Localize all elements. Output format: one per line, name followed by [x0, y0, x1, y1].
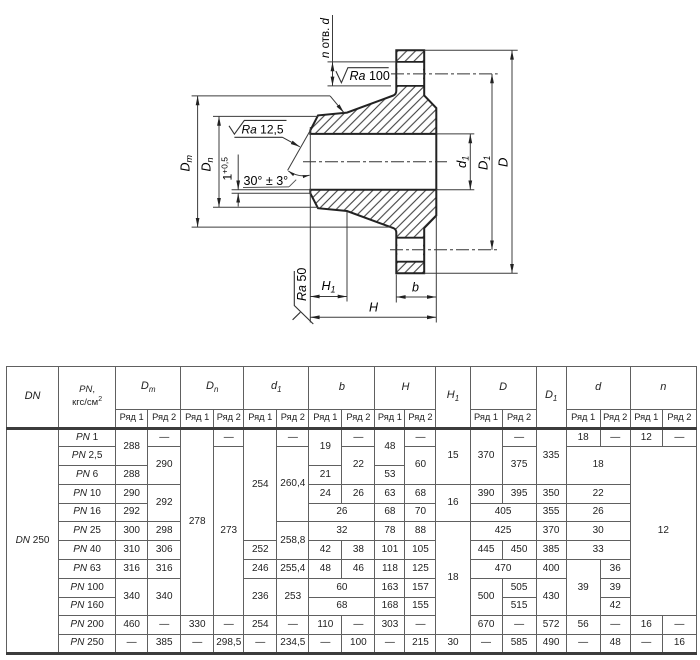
svg-text:n отв. d: n отв. d [320, 17, 332, 58]
svg-text:Ra 12,5: Ra 12,5 [242, 122, 284, 136]
svg-text:Dm: Dm [179, 154, 195, 171]
svg-text:d1: d1 [454, 156, 471, 168]
svg-text:30° ± 3°: 30° ± 3° [244, 174, 289, 188]
svg-text:D1: D1 [476, 156, 493, 170]
svg-text:Ra 50: Ra 50 [295, 268, 309, 301]
svg-text:H: H [369, 301, 379, 315]
svg-text:b: b [412, 281, 419, 295]
svg-text:H1: H1 [322, 279, 336, 295]
svg-text:D: D [496, 158, 511, 167]
svg-text:1+0,5: 1+0,5 [220, 157, 235, 181]
svg-text:Ra 100: Ra 100 [350, 69, 390, 83]
svg-text:Dn: Dn [200, 157, 216, 171]
